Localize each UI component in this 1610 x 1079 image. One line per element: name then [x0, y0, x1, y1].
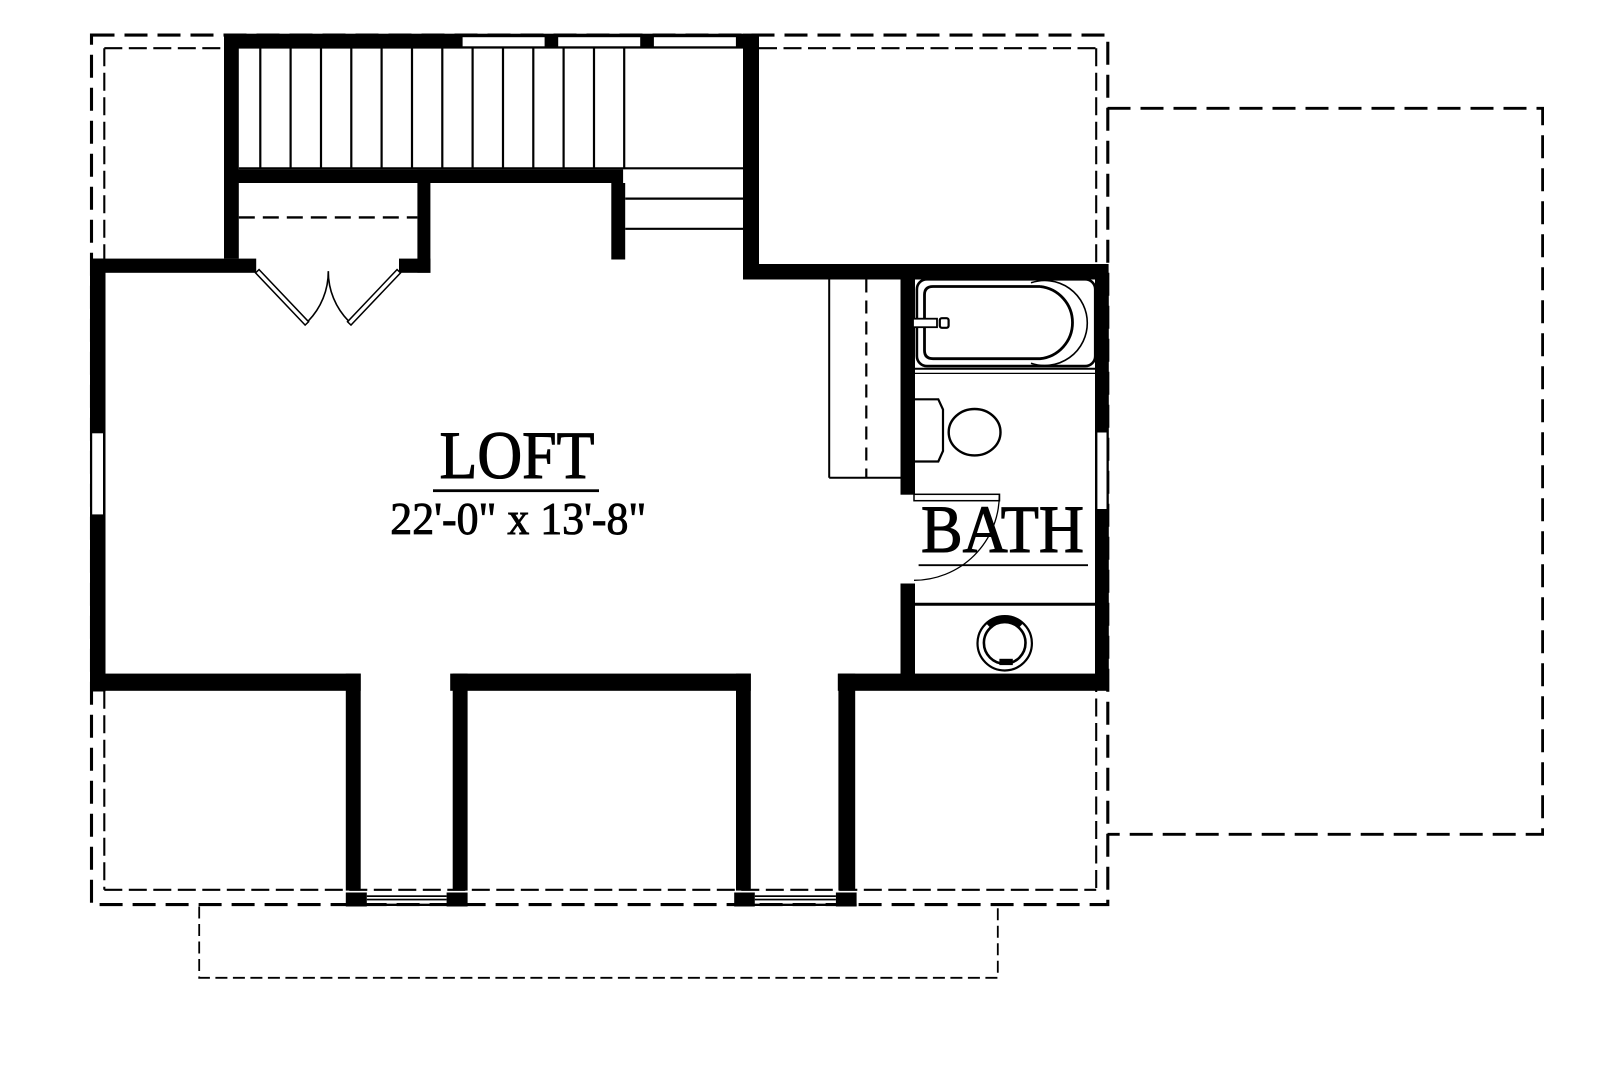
svg-text:22'-0" x 13'-8": 22'-0" x 13'-8": [390, 494, 646, 544]
svg-text:LOFT: LOFT: [440, 417, 595, 493]
svg-text:BATH: BATH: [921, 491, 1084, 567]
